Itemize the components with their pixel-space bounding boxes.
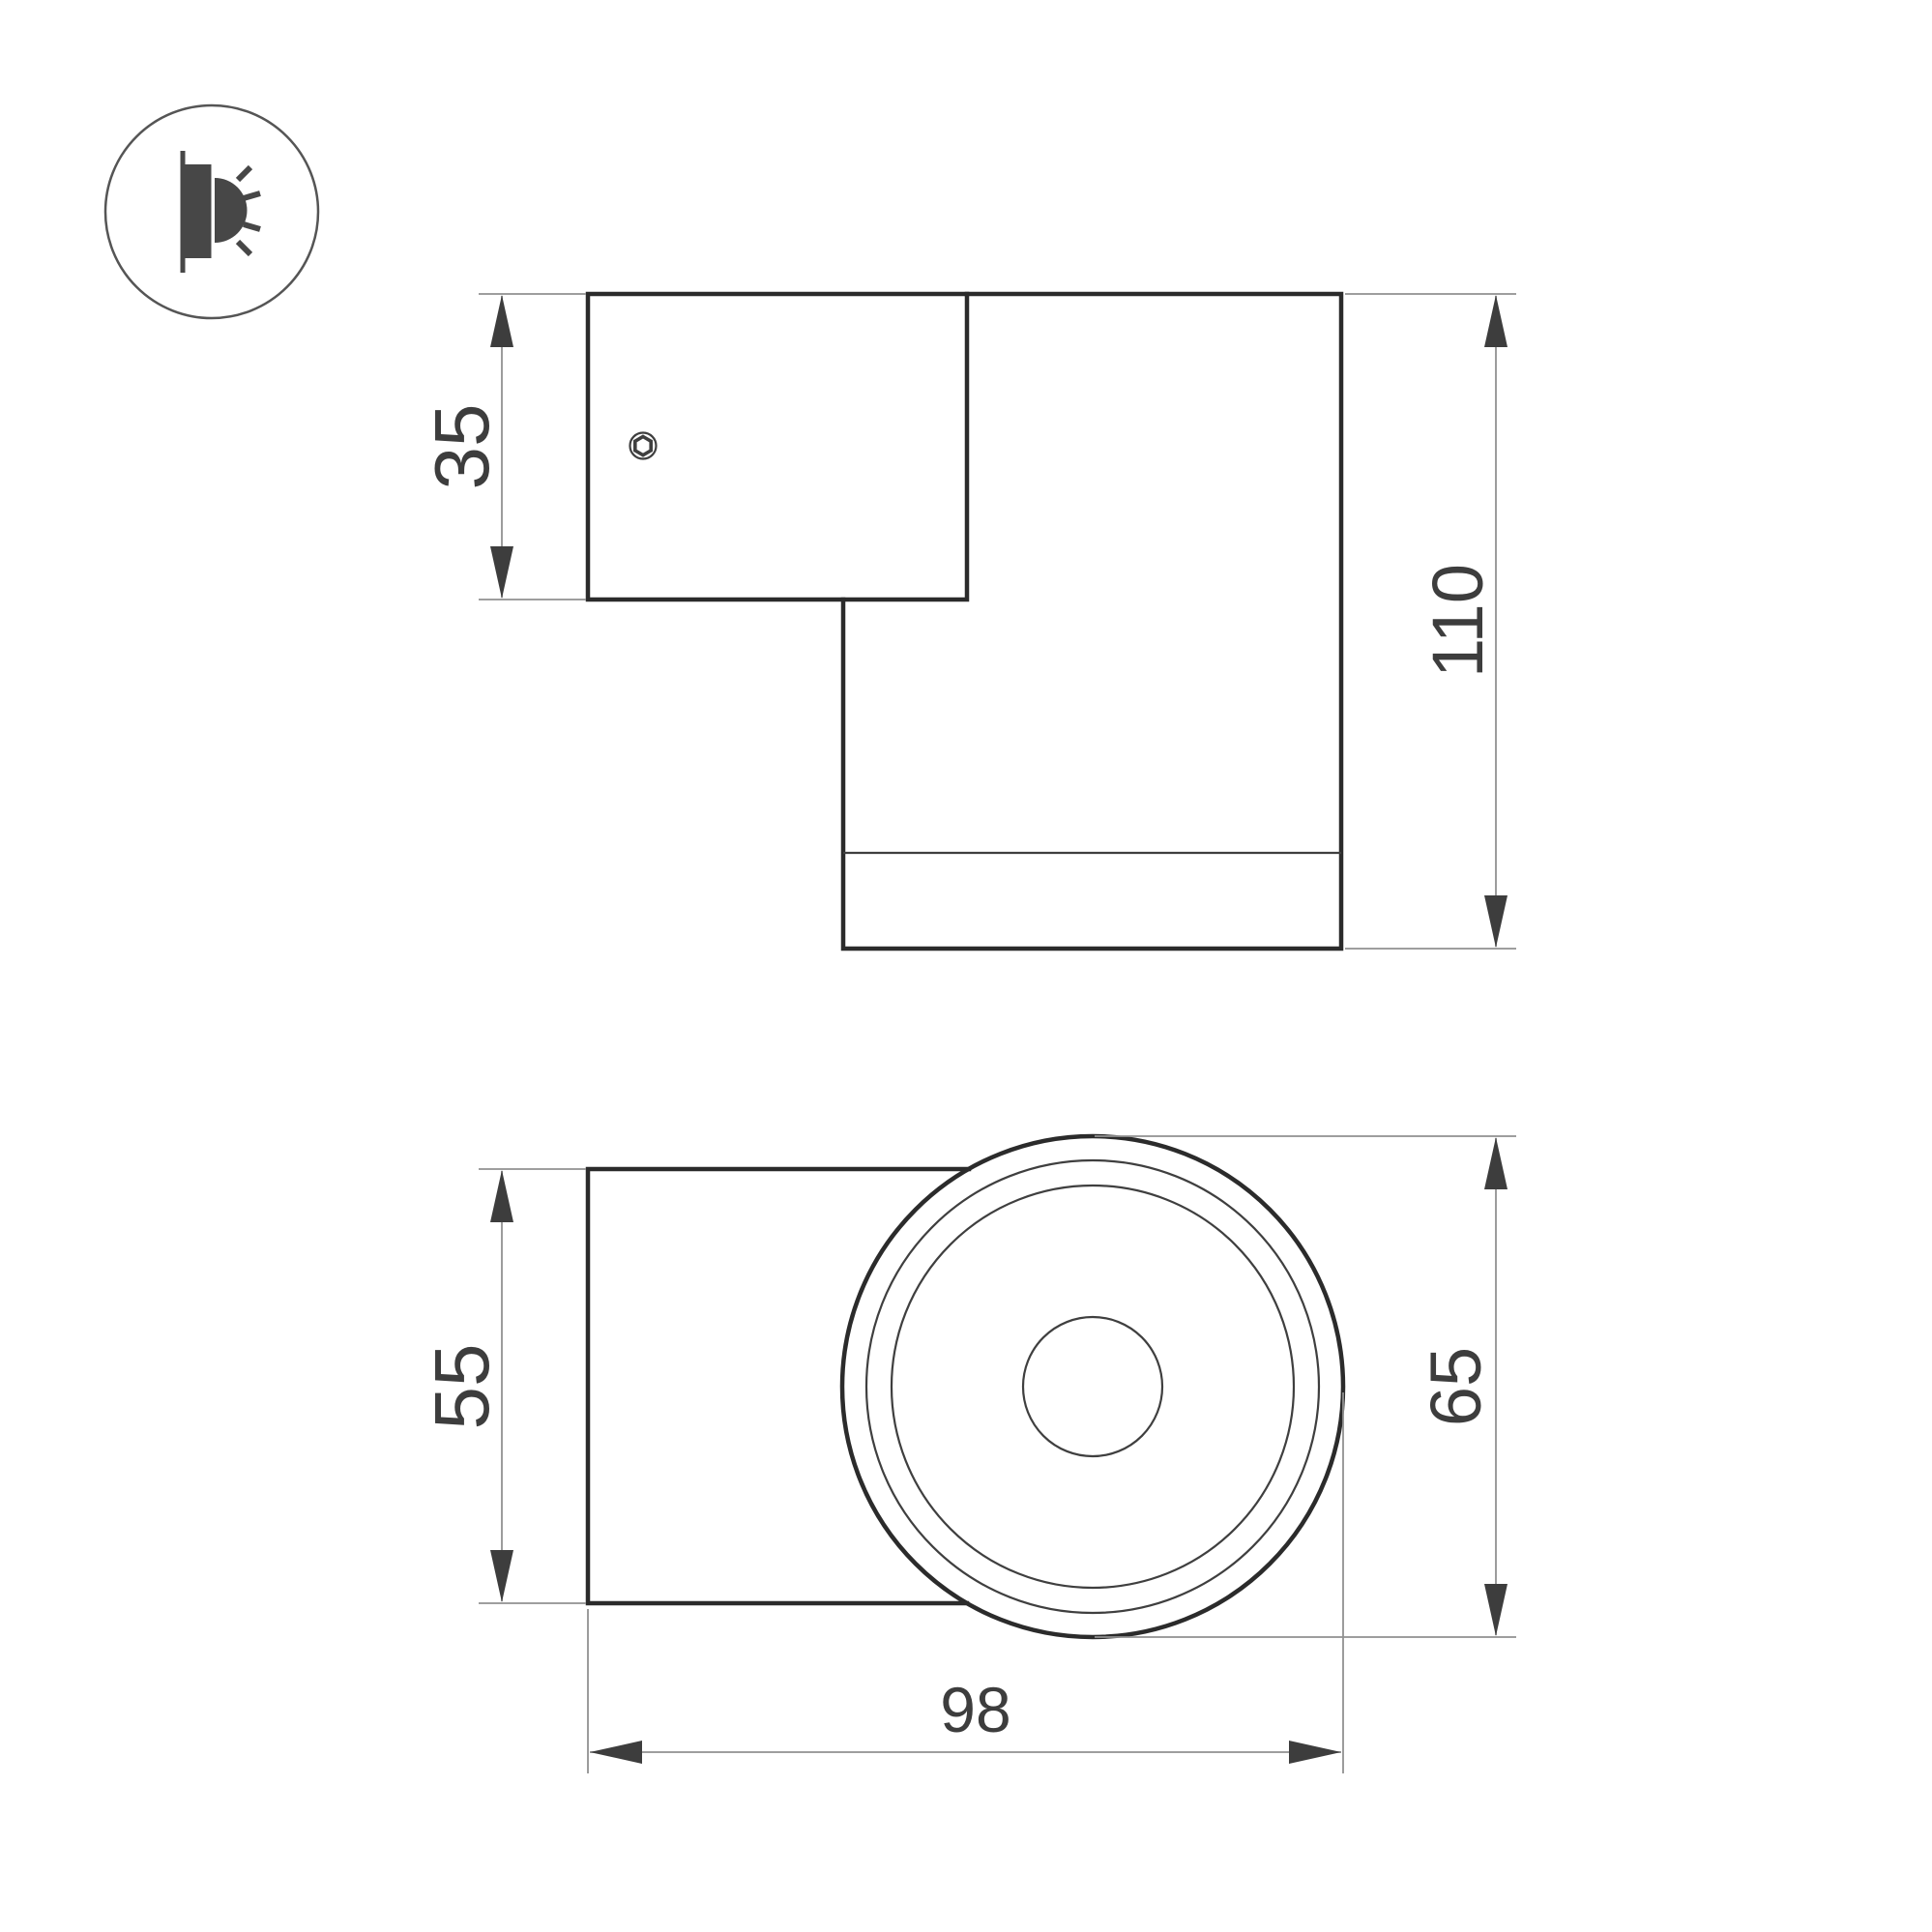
dimension-arrows (490, 295, 1508, 1764)
icon-circle (105, 105, 318, 318)
arrow-down-icon (1484, 895, 1508, 948)
arrow-up-icon (1484, 1137, 1508, 1189)
side-view-details (630, 433, 1342, 854)
glass-ring-circle (892, 1186, 1294, 1588)
plate-bottom-outline (588, 1169, 969, 1603)
bezel-ring-circle (866, 1160, 1319, 1613)
light-ray (244, 193, 260, 198)
dimension-label-total-depth: 98 (940, 1674, 1010, 1745)
wall-lamp-side-glow-icon (105, 105, 318, 318)
dimension-label-total-height: 110 (1418, 564, 1498, 678)
arrow-up-icon (490, 1170, 513, 1222)
lamp-body-shape (186, 164, 212, 258)
bottom-view-details (866, 1160, 1319, 1613)
dimension-labels: 35 110 55 65 98 (419, 404, 1498, 1745)
bottom-view-outline (588, 1136, 1343, 1637)
icon-circle-border (105, 105, 318, 318)
side-view-outline (588, 294, 1341, 949)
dimension-lines (479, 294, 1516, 1773)
arrow-down-icon (1484, 1584, 1508, 1636)
lamp-dome-shape (215, 178, 247, 243)
dimension-label-plate-height: 35 (419, 404, 505, 490)
dimension-drawing-page: 35 110 55 65 98 (0, 0, 1932, 1932)
arrow-down-icon (490, 1550, 513, 1602)
mounting-plate-outline (588, 294, 967, 600)
arrow-up-icon (1484, 295, 1508, 347)
arrow-up-icon (490, 295, 513, 347)
technical-drawing-canvas: 35 110 55 65 98 (0, 0, 1932, 1932)
side-view (588, 294, 1341, 949)
dimension-label-plate-width: 55 (419, 1344, 505, 1430)
led-center-circle (1023, 1317, 1162, 1456)
lamp-body-outline (843, 294, 1341, 949)
light-ray (244, 224, 260, 229)
screw-hex-socket (635, 437, 651, 455)
hex-socket-icon (635, 437, 651, 455)
body-outer-circle (842, 1136, 1343, 1637)
dimension-label-body-diameter: 65 (1416, 1347, 1496, 1426)
arrow-down-icon (490, 546, 513, 599)
arrow-right-icon (1289, 1741, 1341, 1764)
arrow-left-icon (590, 1741, 642, 1764)
light-ray (238, 242, 250, 254)
bottom-view (588, 1136, 1343, 1637)
light-ray (238, 167, 250, 180)
